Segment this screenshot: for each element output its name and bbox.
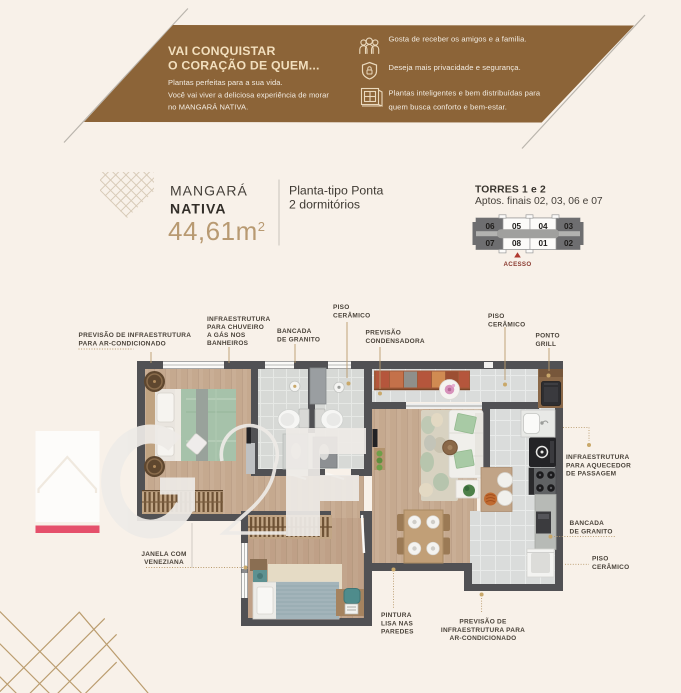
svg-text:Planta-tipo Ponta: Planta-tipo Ponta — [289, 184, 384, 198]
svg-text:DE GRANITO: DE GRANITO — [570, 528, 613, 535]
svg-text:INFRAESTRUTURA: INFRAESTRUTURA — [566, 454, 629, 461]
svg-text:07: 07 — [485, 239, 495, 248]
svg-text:PISO: PISO — [488, 313, 505, 320]
svg-text:PREVISÃO DE: PREVISÃO DE — [459, 617, 507, 626]
svg-text:VAI CONQUISTAR: VAI CONQUISTAR — [168, 44, 276, 58]
svg-text:DE GRANITO: DE GRANITO — [277, 336, 320, 343]
svg-text:ACESSO: ACESSO — [504, 261, 532, 268]
svg-text:VENEZIANA: VENEZIANA — [144, 559, 184, 566]
svg-text:O CORAÇÃO DE QUEM...: O CORAÇÃO DE QUEM... — [168, 58, 320, 73]
svg-text:44,61m2: 44,61m2 — [168, 216, 265, 246]
svg-text:01: 01 — [538, 239, 548, 248]
svg-text:06: 06 — [485, 222, 495, 231]
svg-text:no MANGARÁ NATIVA.: no MANGARÁ NATIVA. — [168, 103, 248, 112]
svg-text:PAREDES: PAREDES — [381, 629, 414, 636]
svg-text:NATIVA: NATIVA — [170, 201, 227, 217]
svg-text:PINTURA: PINTURA — [381, 612, 412, 619]
svg-text:Plantas inteligentes e bem dis: Plantas inteligentes e bem distribuídas … — [389, 89, 541, 98]
svg-text:04: 04 — [538, 222, 548, 231]
svg-text:AR-CONDICIONADO: AR-CONDICIONADO — [450, 635, 517, 642]
svg-text:quem busca conforto e bem-esta: quem busca conforto e bem-estar. — [389, 103, 507, 112]
svg-text:A GÁS NOS: A GÁS NOS — [207, 330, 246, 339]
svg-text:INFRAESTRUTURA PARA: INFRAESTRUTURA PARA — [441, 627, 525, 634]
svg-text:PARA AQUECEDOR: PARA AQUECEDOR — [566, 462, 631, 469]
svg-text:PISO: PISO — [333, 304, 350, 311]
svg-text:03: 03 — [564, 222, 574, 231]
svg-text:PARA AR-CONDICIONADO: PARA AR-CONDICIONADO — [79, 340, 166, 347]
svg-text:Plantas perfeitas para a sua v: Plantas perfeitas para a sua vida. — [168, 78, 283, 87]
svg-text:PISO: PISO — [592, 556, 609, 563]
svg-text:BANCADA: BANCADA — [277, 328, 312, 335]
svg-text:DE PASSAGEM: DE PASSAGEM — [566, 471, 616, 478]
svg-text:JANELA COM: JANELA COM — [141, 551, 186, 558]
svg-text:CERÂMICO: CERÂMICO — [592, 562, 629, 571]
svg-text:LISA NAS: LISA NAS — [381, 620, 414, 627]
svg-text:BANHEIROS: BANHEIROS — [207, 340, 249, 347]
svg-text:2 dormitórios: 2 dormitórios — [289, 198, 360, 212]
svg-text:PREVISÃO DE INFRAESTRUTURA: PREVISÃO DE INFRAESTRUTURA — [79, 330, 192, 339]
svg-text:PARA CHUVEIRO: PARA CHUVEIRO — [207, 324, 264, 331]
svg-text:CONDENSADORA: CONDENSADORA — [366, 338, 425, 345]
svg-text:TORRES 1 e 2: TORRES 1 e 2 — [475, 185, 546, 196]
svg-text:08: 08 — [512, 239, 522, 248]
svg-text:Você vai viver a deliciosa exp: Você vai viver a deliciosa experiência d… — [168, 91, 329, 100]
svg-text:05: 05 — [512, 222, 522, 231]
svg-text:Deseja mais privacidade e segu: Deseja mais privacidade e segurança. — [389, 63, 521, 72]
svg-text:02: 02 — [564, 239, 574, 248]
svg-text:INFRAESTRUTURA: INFRAESTRUTURA — [207, 316, 270, 323]
svg-text:CERÂMICO: CERÂMICO — [333, 310, 370, 319]
svg-text:GRILL: GRILL — [536, 341, 557, 348]
svg-text:Gosta de receber os amigos e a: Gosta de receber os amigos e a familia. — [389, 35, 527, 44]
svg-text:PONTO: PONTO — [536, 333, 560, 340]
svg-text:CERÂMICO: CERÂMICO — [488, 319, 525, 328]
svg-text:PREVISÃO: PREVISÃO — [366, 328, 402, 337]
svg-text:BANCADA: BANCADA — [570, 520, 605, 527]
svg-text:Aptos. finais 02, 03, 06 e 07: Aptos. finais 02, 03, 06 e 07 — [475, 196, 603, 207]
svg-text:MANGARÁ: MANGARÁ — [170, 183, 248, 199]
